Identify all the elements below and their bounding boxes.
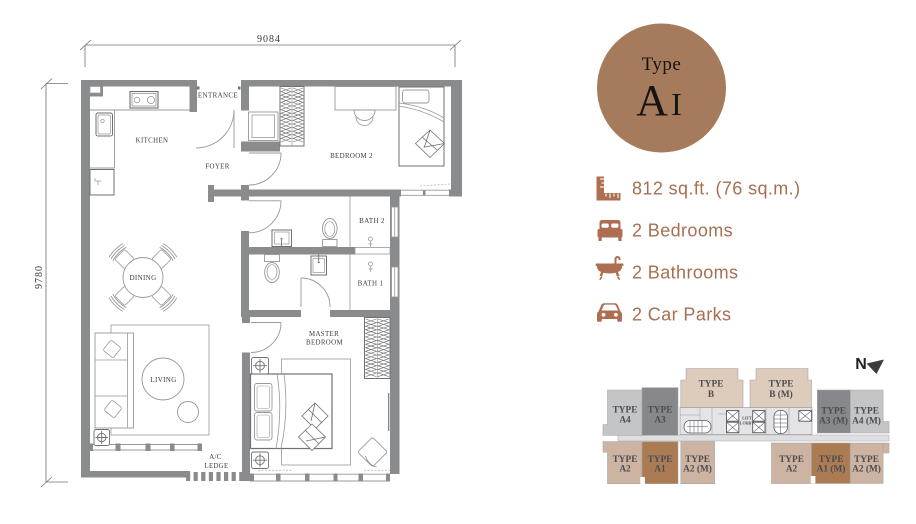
svg-text:LIVING: LIVING bbox=[150, 376, 176, 384]
svg-text:2 Bedrooms: 2 Bedrooms bbox=[632, 221, 733, 241]
svg-text:TYPE: TYPE bbox=[854, 455, 879, 465]
svg-text:TYPE: TYPE bbox=[779, 455, 804, 465]
svg-text:A2 (M): A2 (M) bbox=[852, 463, 881, 474]
svg-text:9780: 9780 bbox=[34, 265, 45, 289]
svg-text:A/C: A/C bbox=[209, 454, 221, 461]
svg-text:BATH 1: BATH 1 bbox=[358, 280, 384, 288]
svg-text:TYPE: TYPE bbox=[819, 455, 844, 465]
svg-text:DINING: DINING bbox=[130, 274, 157, 282]
svg-text:A2: A2 bbox=[619, 464, 631, 474]
svg-text:BATH 2: BATH 2 bbox=[359, 217, 385, 225]
svg-text:TYPE: TYPE bbox=[821, 407, 846, 417]
svg-text:ENTRANCE: ENTRANCE bbox=[198, 92, 238, 100]
svg-text:A2 (M): A2 (M) bbox=[683, 463, 712, 474]
svg-text:A1: A1 bbox=[654, 464, 666, 474]
svg-text:TYPE: TYPE bbox=[613, 455, 638, 465]
svg-text:A4: A4 bbox=[619, 416, 631, 426]
svg-text:A1 (M): A1 (M) bbox=[817, 463, 846, 474]
svg-text:TYPE: TYPE bbox=[769, 379, 794, 389]
svg-text:A2: A2 bbox=[786, 464, 798, 474]
svg-text:TYPE: TYPE bbox=[648, 406, 673, 416]
svg-text:FOYER: FOYER bbox=[205, 164, 229, 171]
svg-text:N: N bbox=[855, 356, 867, 373]
svg-text:LOBBY: LOBBY bbox=[740, 421, 755, 426]
svg-text:B: B bbox=[708, 390, 714, 400]
svg-text:A4 (M): A4 (M) bbox=[852, 415, 881, 426]
svg-text:812 sq.ft. (76 sq.m.): 812 sq.ft. (76 sq.m.) bbox=[632, 179, 800, 199]
svg-text:LEDGE: LEDGE bbox=[204, 463, 228, 470]
svg-text:2 Bathrooms: 2 Bathrooms bbox=[632, 263, 738, 283]
svg-text:TYPE: TYPE bbox=[685, 455, 710, 465]
svg-text:A3: A3 bbox=[654, 416, 666, 426]
svg-text:2 Car Parks: 2 Car Parks bbox=[632, 305, 731, 325]
svg-text:A3 (M): A3 (M) bbox=[819, 415, 848, 426]
svg-text:KITCHEN: KITCHEN bbox=[136, 138, 169, 145]
svg-text:MASTER: MASTER bbox=[309, 331, 339, 338]
svg-text:TYPE: TYPE bbox=[648, 455, 673, 465]
svg-text:B (M): B (M) bbox=[769, 389, 793, 400]
svg-text:Type: Type bbox=[642, 54, 682, 75]
svg-text:TYPE: TYPE bbox=[699, 379, 724, 389]
svg-text:BEDROOM 2: BEDROOM 2 bbox=[330, 153, 373, 160]
svg-text:TYPE: TYPE bbox=[854, 407, 879, 417]
svg-text:9084: 9084 bbox=[257, 34, 281, 45]
svg-text:TYPE: TYPE bbox=[613, 406, 638, 416]
svg-text:BEDROOM: BEDROOM bbox=[306, 340, 343, 347]
